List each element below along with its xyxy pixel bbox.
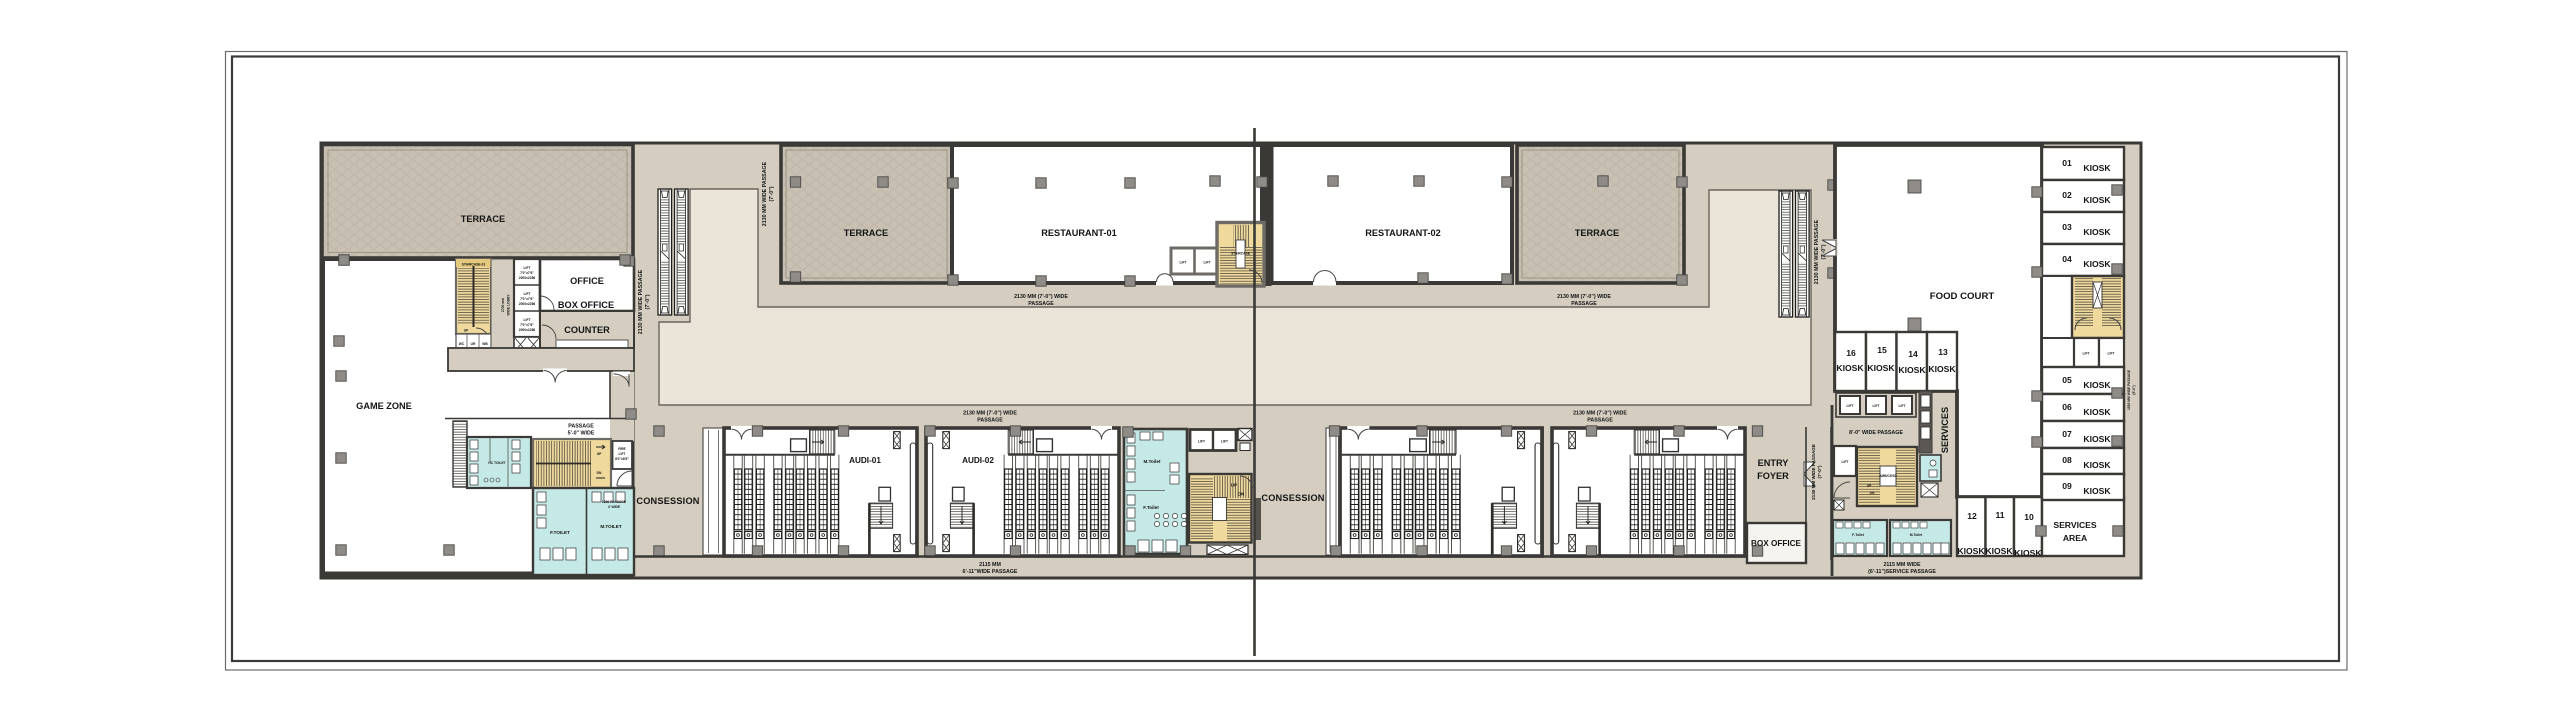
svg-text:KIOSK: KIOSK [2083, 434, 2111, 444]
svg-text:M.Toilet: M.Toilet [1143, 459, 1160, 464]
svg-text:11: 11 [1995, 510, 2004, 520]
svg-text:KIOSK: KIOSK [1898, 365, 1926, 375]
svg-text:KIOSK: KIOSK [2083, 259, 2111, 269]
svg-text:LIFT: LIFT [1847, 404, 1854, 408]
svg-text:M.TOILET: M.TOILET [600, 524, 622, 529]
svg-text:KIOSK: KIOSK [2083, 486, 2111, 496]
svg-text:06: 06 [2062, 402, 2072, 412]
svg-text:PASSAGE: PASSAGE [1028, 301, 1054, 307]
svg-text:TERRACE: TERRACE [844, 228, 888, 238]
svg-text:2130 MM (7'-0") WIDE: 2130 MM (7'-0") WIDE [1573, 411, 1627, 417]
svg-text:SERVICES: SERVICES [2053, 520, 2097, 530]
svg-text:COUNTER: COUNTER [564, 325, 610, 335]
svg-text:(7'-0"): (7'-0") [769, 186, 775, 201]
svg-text:LIFT: LIFT [524, 318, 531, 322]
svg-text:2000x2286: 2000x2286 [519, 328, 536, 332]
svg-text:KIOSK: KIOSK [1928, 364, 1956, 374]
svg-text:LIFT: LIFT [1221, 440, 1228, 444]
svg-text:KIOSK: KIOSK [2083, 195, 2111, 205]
svg-text:KIOSK: KIOSK [1836, 363, 1864, 373]
svg-text:RESTAURANT-02: RESTAURANT-02 [1365, 228, 1440, 238]
svg-text:LIFT: LIFT [524, 292, 531, 296]
svg-text:(7'-0"): (7'-0") [1817, 465, 1822, 478]
svg-text:LIFT: LIFT [1180, 261, 1187, 265]
svg-text:FOYER: FOYER [1757, 471, 1789, 481]
svg-text:LIFT: LIFT [1198, 440, 1205, 444]
svg-text:8'-0" WIDE PASSAGE: 8'-0" WIDE PASSAGE [1849, 430, 1903, 436]
svg-text:F.Toilet: F.Toilet [1143, 505, 1159, 510]
svg-text:UP: UP [1867, 484, 1872, 488]
svg-text:WB: WB [482, 342, 488, 346]
svg-text:PASSAGE: PASSAGE [568, 424, 594, 430]
svg-text:KIOSK: KIOSK [2083, 460, 2111, 470]
svg-text:SERVICES: SERVICES [1940, 407, 1950, 453]
svg-text:04: 04 [2062, 254, 2072, 264]
svg-text:UP: UP [464, 329, 469, 333]
svg-text:TERRACE: TERRACE [1575, 228, 1619, 238]
svg-text:FOOD COURT: FOOD COURT [1930, 291, 1995, 302]
svg-text:AUDI-02: AUDI-02 [962, 456, 994, 465]
svg-text:09: 09 [2062, 481, 2072, 491]
svg-text:15: 15 [1877, 345, 1887, 355]
svg-text:WC: WC [459, 342, 465, 346]
svg-text:AMB/CKSD: AMB/CKSD [1879, 474, 1897, 478]
svg-text:KIOSK: KIOSK [1867, 363, 1895, 373]
svg-text:M-Toilet: M-Toilet [1910, 533, 1923, 537]
svg-text:OFFICE: OFFICE [570, 276, 604, 286]
svg-text:07: 07 [2062, 429, 2072, 439]
svg-text:1300 PASSAGE: 1300 PASSAGE [602, 500, 627, 504]
svg-text:BOX OFFICE: BOX OFFICE [558, 300, 614, 310]
svg-text:WIDE LOBBY: WIDE LOBBY [507, 294, 511, 316]
svg-text:UP: UP [1231, 483, 1237, 488]
svg-text:7'0"x7'6": 7'0"x7'6" [520, 271, 534, 275]
svg-text:10: 10 [2024, 512, 2034, 522]
svg-text:LIFT: LIFT [1873, 404, 1880, 408]
svg-text:KIOSK: KIOSK [2083, 227, 2111, 237]
svg-text:AUDI-01: AUDI-01 [849, 456, 881, 465]
svg-text:14: 14 [1908, 349, 1918, 359]
svg-text:F-Toilet: F-Toilet [1852, 533, 1865, 537]
svg-text:LIFT: LIFT [1842, 460, 1849, 464]
svg-text:KIOSK: KIOSK [2083, 380, 2111, 390]
svg-text:KIOSK: KIOSK [2083, 407, 2111, 417]
svg-text:2130 MM WIDE PASSAGE: 2130 MM WIDE PASSAGE [762, 161, 768, 226]
svg-text:UP: UP [597, 452, 602, 456]
svg-text:13: 13 [1938, 347, 1948, 357]
svg-text:8'0"x8'6": 8'0"x8'6" [615, 457, 629, 461]
svg-text:2130 MM (7'-0") WIDE: 2130 MM (7'-0") WIDE [1557, 294, 1611, 300]
svg-text:F.TOILET: F.TOILET [550, 530, 570, 535]
svg-text:2130 MM (7'-0") WIDE: 2130 MM (7'-0") WIDE [1014, 294, 1068, 300]
svg-text:7'0"x7'6": 7'0"x7'6" [520, 297, 534, 301]
svg-text:LIFT: LIFT [1899, 404, 1906, 408]
svg-text:PASSAGE: PASSAGE [977, 418, 1003, 424]
svg-text:(7'-0"): (7'-0") [645, 294, 651, 309]
svg-text:KIOSK: KIOSK [2083, 163, 2111, 173]
svg-text:CONSESSION: CONSESSION [1261, 493, 1324, 503]
svg-text:TERRACE: TERRACE [461, 214, 505, 224]
svg-text:CONSESSION: CONSESSION [636, 496, 699, 506]
svg-text:2700 mm: 2700 mm [501, 298, 505, 312]
svg-text:2000x2286: 2000x2286 [519, 302, 536, 306]
svg-text:DN: DN [597, 471, 602, 475]
svg-text:03: 03 [2062, 222, 2072, 232]
svg-text:02: 02 [2062, 190, 2072, 200]
svg-text:2130 MM WIDE PASSAGE: 2130 MM WIDE PASSAGE [1811, 444, 1816, 500]
svg-text:DN: DN [1870, 491, 1875, 495]
svg-text:AREA: AREA [2063, 533, 2087, 543]
svg-text:2130 MM (7'-0") WIDE: 2130 MM (7'-0") WIDE [963, 411, 1017, 417]
svg-text:2115 MM: 2115 MM [979, 562, 1001, 568]
svg-text:STAIRCASE: STAIRCASE [1231, 252, 1251, 256]
svg-text:1520 MM WIDE PASSAGE: 1520 MM WIDE PASSAGE [2127, 369, 2131, 410]
svg-text:01: 01 [2062, 158, 2072, 168]
svg-text:5'-0" WIDE: 5'-0" WIDE [568, 431, 595, 437]
svg-text:STAIRCASE-01: STAIRCASE-01 [462, 263, 486, 267]
svg-text:08: 08 [2062, 455, 2072, 465]
svg-text:PASSAGE: PASSAGE [1587, 418, 1613, 424]
svg-text:2130 MM WIDE PASSAGE: 2130 MM WIDE PASSAGE [638, 269, 644, 334]
svg-text:LIFT: LIFT [2108, 352, 2115, 356]
svg-text:KIOSK: KIOSK [2014, 548, 2042, 558]
svg-text:GAME ZONE: GAME ZONE [356, 401, 412, 411]
svg-text:(6'-11")SERVICE PASSAGE: (6'-11")SERVICE PASSAGE [1868, 569, 1936, 575]
svg-text:4' WIDE: 4' WIDE [608, 505, 621, 509]
svg-text:UR: UR [471, 342, 476, 346]
svg-text:16: 16 [1846, 348, 1856, 358]
svg-text:KIOSK: KIOSK [1985, 546, 2013, 556]
svg-text:12: 12 [1967, 511, 1977, 521]
svg-text:LIFT: LIFT [2083, 352, 2090, 356]
svg-text:LIFT: LIFT [524, 266, 531, 270]
svg-text:FIRE: FIRE [618, 447, 626, 451]
svg-text:(7'-0"): (7'-0") [1821, 244, 1827, 259]
svg-text:HC TOILET: HC TOILET [488, 461, 505, 465]
svg-text:05: 05 [2062, 375, 2072, 385]
svg-text:PASSAGE: PASSAGE [1571, 301, 1597, 307]
svg-text:ENTRY: ENTRY [1758, 458, 1789, 468]
svg-text:2000x2286: 2000x2286 [519, 276, 536, 280]
svg-text:LIFT: LIFT [1204, 261, 1211, 265]
svg-text:2115 MM WIDE: 2115 MM WIDE [1883, 562, 1921, 568]
svg-text:DN: DN [1238, 492, 1245, 497]
svg-text:LIFT: LIFT [619, 452, 626, 456]
svg-text:RESTAURANT-01: RESTAURANT-01 [1041, 228, 1116, 238]
svg-text:(5'-0"): (5'-0") [2132, 385, 2136, 394]
svg-text:2130 MM WIDE PASSAGE: 2130 MM WIDE PASSAGE [1814, 219, 1820, 284]
svg-text:7'0"x7'6": 7'0"x7'6" [520, 323, 534, 327]
svg-text:6'-11"WIDE PASSAGE: 6'-11"WIDE PASSAGE [963, 569, 1018, 575]
svg-text:KIOSK: KIOSK [1957, 546, 1985, 556]
